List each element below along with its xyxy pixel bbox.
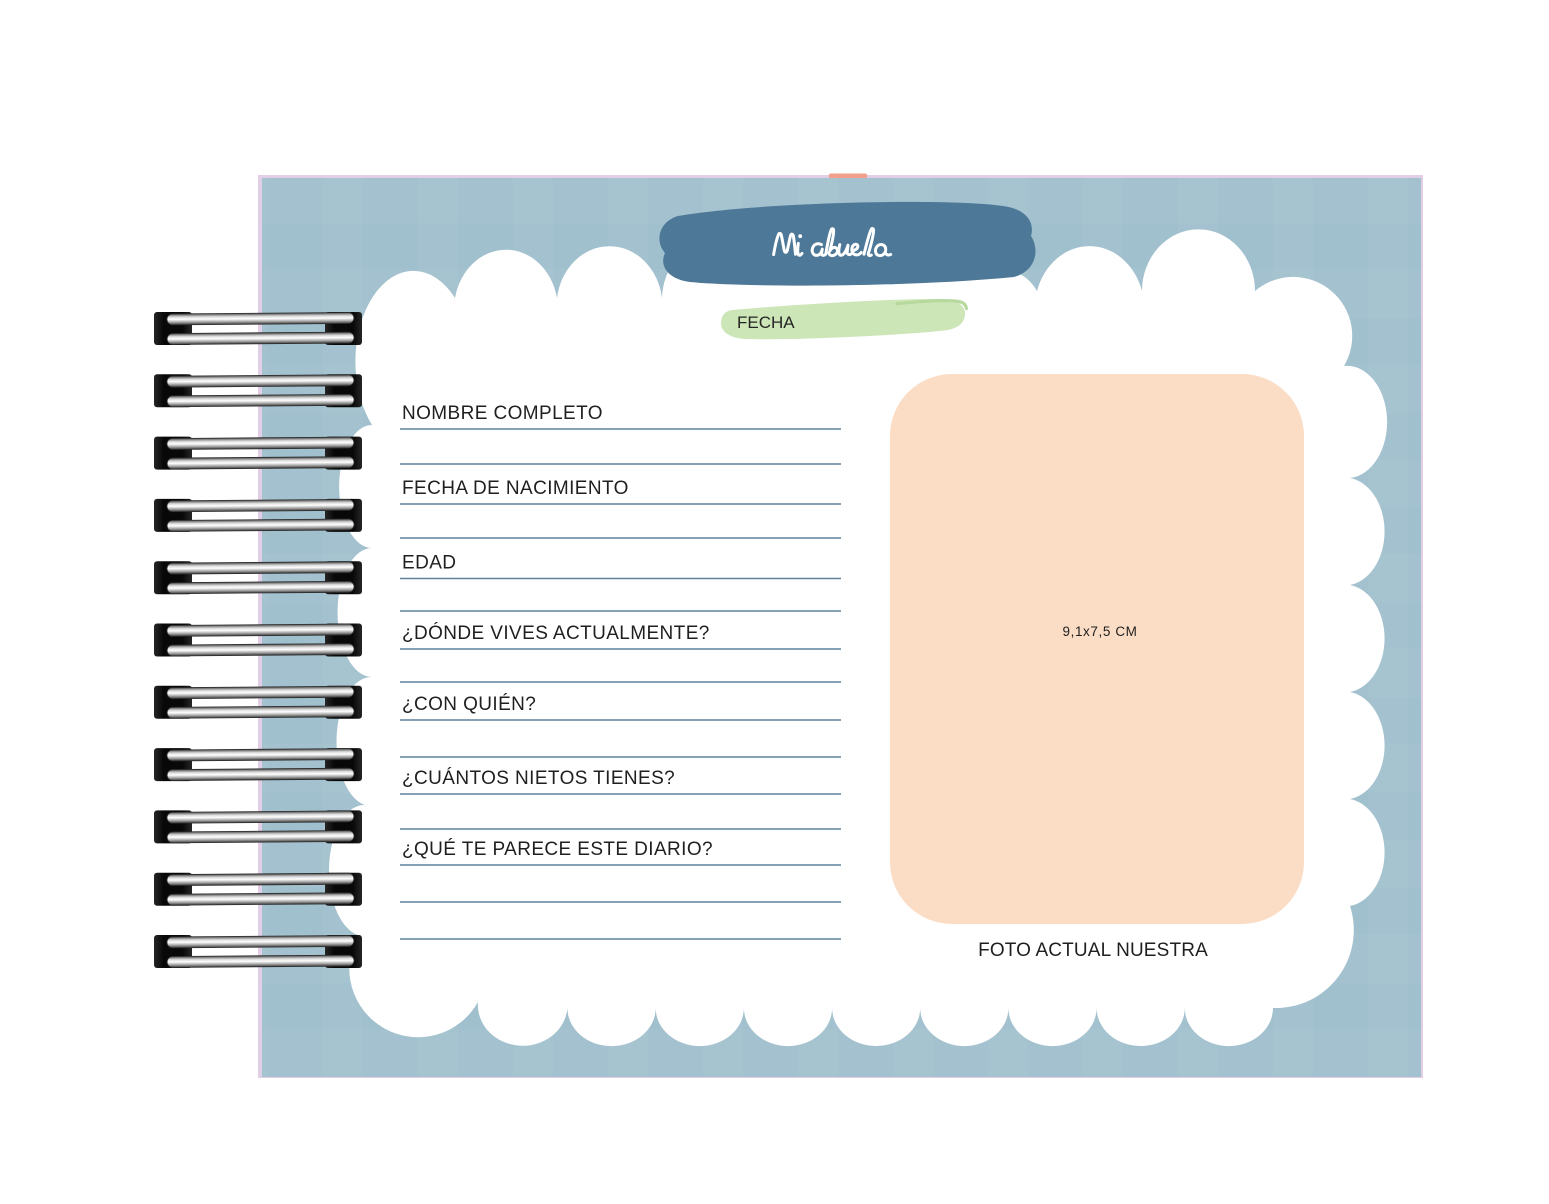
svg-text:¿DÓNDE VIVES ACTUALMENTE?: ¿DÓNDE VIVES ACTUALMENTE? xyxy=(402,622,710,644)
svg-text:9,1x7,5 CM: 9,1x7,5 CM xyxy=(1062,624,1137,639)
svg-text:FECHA DE NACIMIENTO: FECHA DE NACIMIENTO xyxy=(402,478,629,499)
svg-text:EDAD: EDAD xyxy=(402,553,456,574)
svg-text:NOMBRE COMPLETO: NOMBRE COMPLETO xyxy=(402,403,603,424)
svg-text:¿CUÁNTOS NIETOS TIENES?: ¿CUÁNTOS NIETOS TIENES? xyxy=(402,768,675,789)
svg-text:¿CON QUIÉN?: ¿CON QUIÉN? xyxy=(402,694,536,715)
svg-text:FOTO ACTUAL NUESTRA: FOTO ACTUAL NUESTRA xyxy=(978,940,1208,961)
svg-text:FECHA: FECHA xyxy=(737,313,795,332)
svg-text:¿QUÉ TE PARECE ESTE DIARIO?: ¿QUÉ TE PARECE ESTE DIARIO? xyxy=(402,839,713,860)
